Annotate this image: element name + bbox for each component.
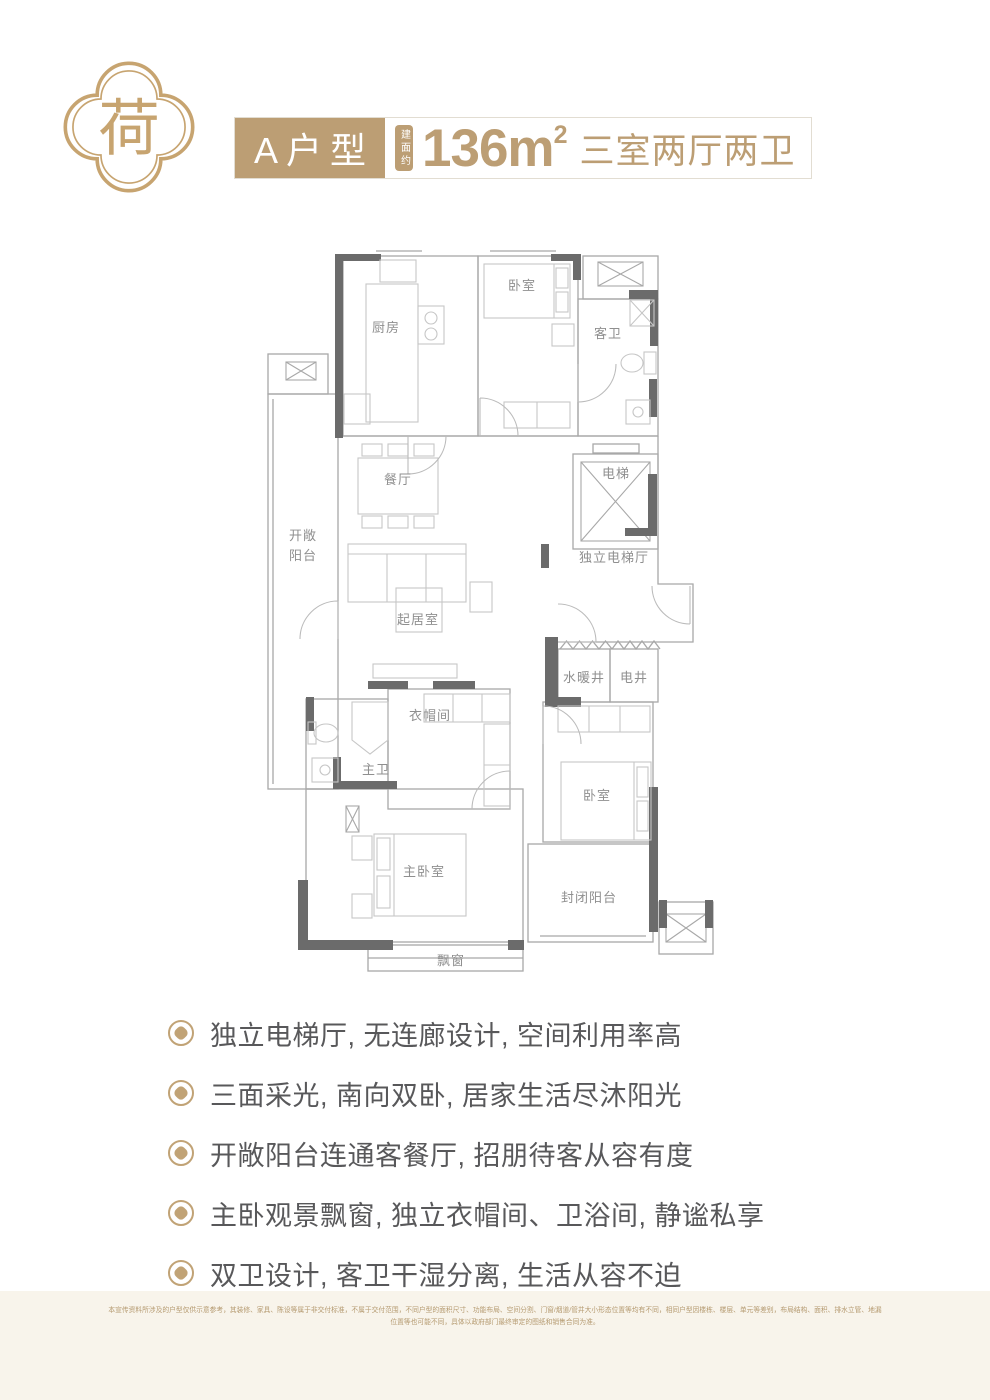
room-label-bay-window: 飘窗 (437, 953, 465, 968)
area-info: 建面约 136m2 三室两厅两卫 (385, 118, 811, 178)
bullet-icon (168, 1140, 194, 1166)
unit-type-label: A户型 (235, 118, 385, 178)
feature-item: 三面采光, 南向双卧, 居家生活尽沐阳光 (168, 1063, 765, 1123)
room-label-open-balcony-2: 阳台 (289, 548, 317, 563)
area-superscript: 2 (554, 121, 567, 149)
floorplan-drawing: 厨房 卧室 客卫 餐厅 电梯 开敞 阳台 起居室 独立电梯厅 水暖井 电井 衣帽… (258, 244, 726, 976)
room-label-master-bath: 主卫 (362, 762, 390, 777)
disclaimer-text: 本宣传资料所涉及的户型仅供示意参考，其装修、家具、陈设等属于非交付标准，不属于交… (95, 1304, 895, 1328)
room-label-kitchen: 厨房 (372, 320, 400, 335)
door-swings (300, 364, 690, 809)
room-label-water-shaft: 水暖井 (563, 670, 605, 685)
room-label-bedroom-top: 卧室 (508, 278, 536, 293)
disclaimer-strip: 本宣传资料所涉及的户型仅供示意参考，其装修、家具、陈设等属于非交付标准，不属于交… (0, 1291, 990, 1400)
room-label-bedroom-south: 卧室 (583, 788, 611, 803)
disclaimer-line-2: 位置等也可能不同，具体以政府部门最终审定的图纸和销售合同为准。 (95, 1316, 895, 1328)
room-label-guest-bath: 客卫 (594, 326, 622, 341)
room-label-open-balcony-1: 开敞 (289, 528, 317, 543)
title-bar: A户型 建面约 136m2 三室两厅两卫 (234, 117, 812, 179)
area-value: 136m2 (422, 122, 566, 175)
bullet-icon (168, 1200, 194, 1226)
feature-list: 独立电梯厅, 无连廊设计, 空间利用率高 三面采光, 南向双卧, 居家生活尽沐阳… (168, 1003, 765, 1303)
bullet-core-icon (173, 1085, 190, 1102)
feature-text: 主卧观景飘窗, 独立衣帽间、卫浴间, 静谧私享 (210, 1194, 765, 1233)
room-label-enclosed-balcony: 封闭阳台 (561, 890, 617, 905)
bullet-icon (168, 1260, 194, 1286)
quatrefoil-emblem-icon: 荷 (60, 56, 198, 198)
bullet-icon (168, 1080, 194, 1106)
area-prefix-badge: 建面约 (395, 125, 413, 171)
area-number: 136m (422, 119, 554, 178)
logo-character: 荷 (98, 94, 160, 163)
bullet-core-icon (173, 1205, 190, 1222)
structure-walls (268, 251, 713, 971)
bullet-core-icon (173, 1025, 190, 1042)
furniture (308, 260, 656, 918)
feature-item: 独立电梯厅, 无连廊设计, 空间利用率高 (168, 1003, 765, 1063)
bullet-icon (168, 1020, 194, 1046)
feature-item: 开敞阳台连通客餐厅, 招朋待客从容有度 (168, 1123, 765, 1183)
room-label-cloakroom: 衣帽间 (409, 708, 451, 723)
bullet-core-icon (173, 1145, 190, 1162)
room-label-electric-shaft: 电井 (620, 670, 648, 685)
room-label-master-bedroom: 主卧室 (403, 864, 445, 879)
room-label-dining: 餐厅 (384, 472, 412, 487)
room-label-living: 起居室 (397, 612, 439, 627)
bullet-core-icon (173, 1265, 190, 1282)
feature-item: 主卧观景飘窗, 独立衣帽间、卫浴间, 静谧私享 (168, 1183, 765, 1243)
feature-text: 三面采光, 南向双卧, 居家生活尽沐阳光 (210, 1074, 682, 1113)
feature-text: 开敞阳台连通客餐厅, 招朋待客从容有度 (210, 1134, 694, 1173)
brand-emblem: 荷 (60, 56, 198, 198)
floorplan: 厨房 卧室 客卫 餐厅 电梯 开敞 阳台 起居室 独立电梯厅 水暖井 电井 衣帽… (258, 244, 726, 976)
room-label-elevator-hall: 独立电梯厅 (579, 550, 649, 565)
layout-description: 三室两厅两卫 (579, 123, 795, 174)
feature-text: 独立电梯厅, 无连廊设计, 空间利用率高 (210, 1014, 682, 1053)
feature-text: 双卫设计, 客卫干湿分离, 生活从容不迫 (210, 1254, 682, 1293)
disclaimer-line-1: 本宣传资料所涉及的户型仅供示意参考，其装修、家具、陈设等属于非交付标准，不属于交… (95, 1304, 895, 1316)
room-label-elevator: 电梯 (602, 466, 630, 481)
